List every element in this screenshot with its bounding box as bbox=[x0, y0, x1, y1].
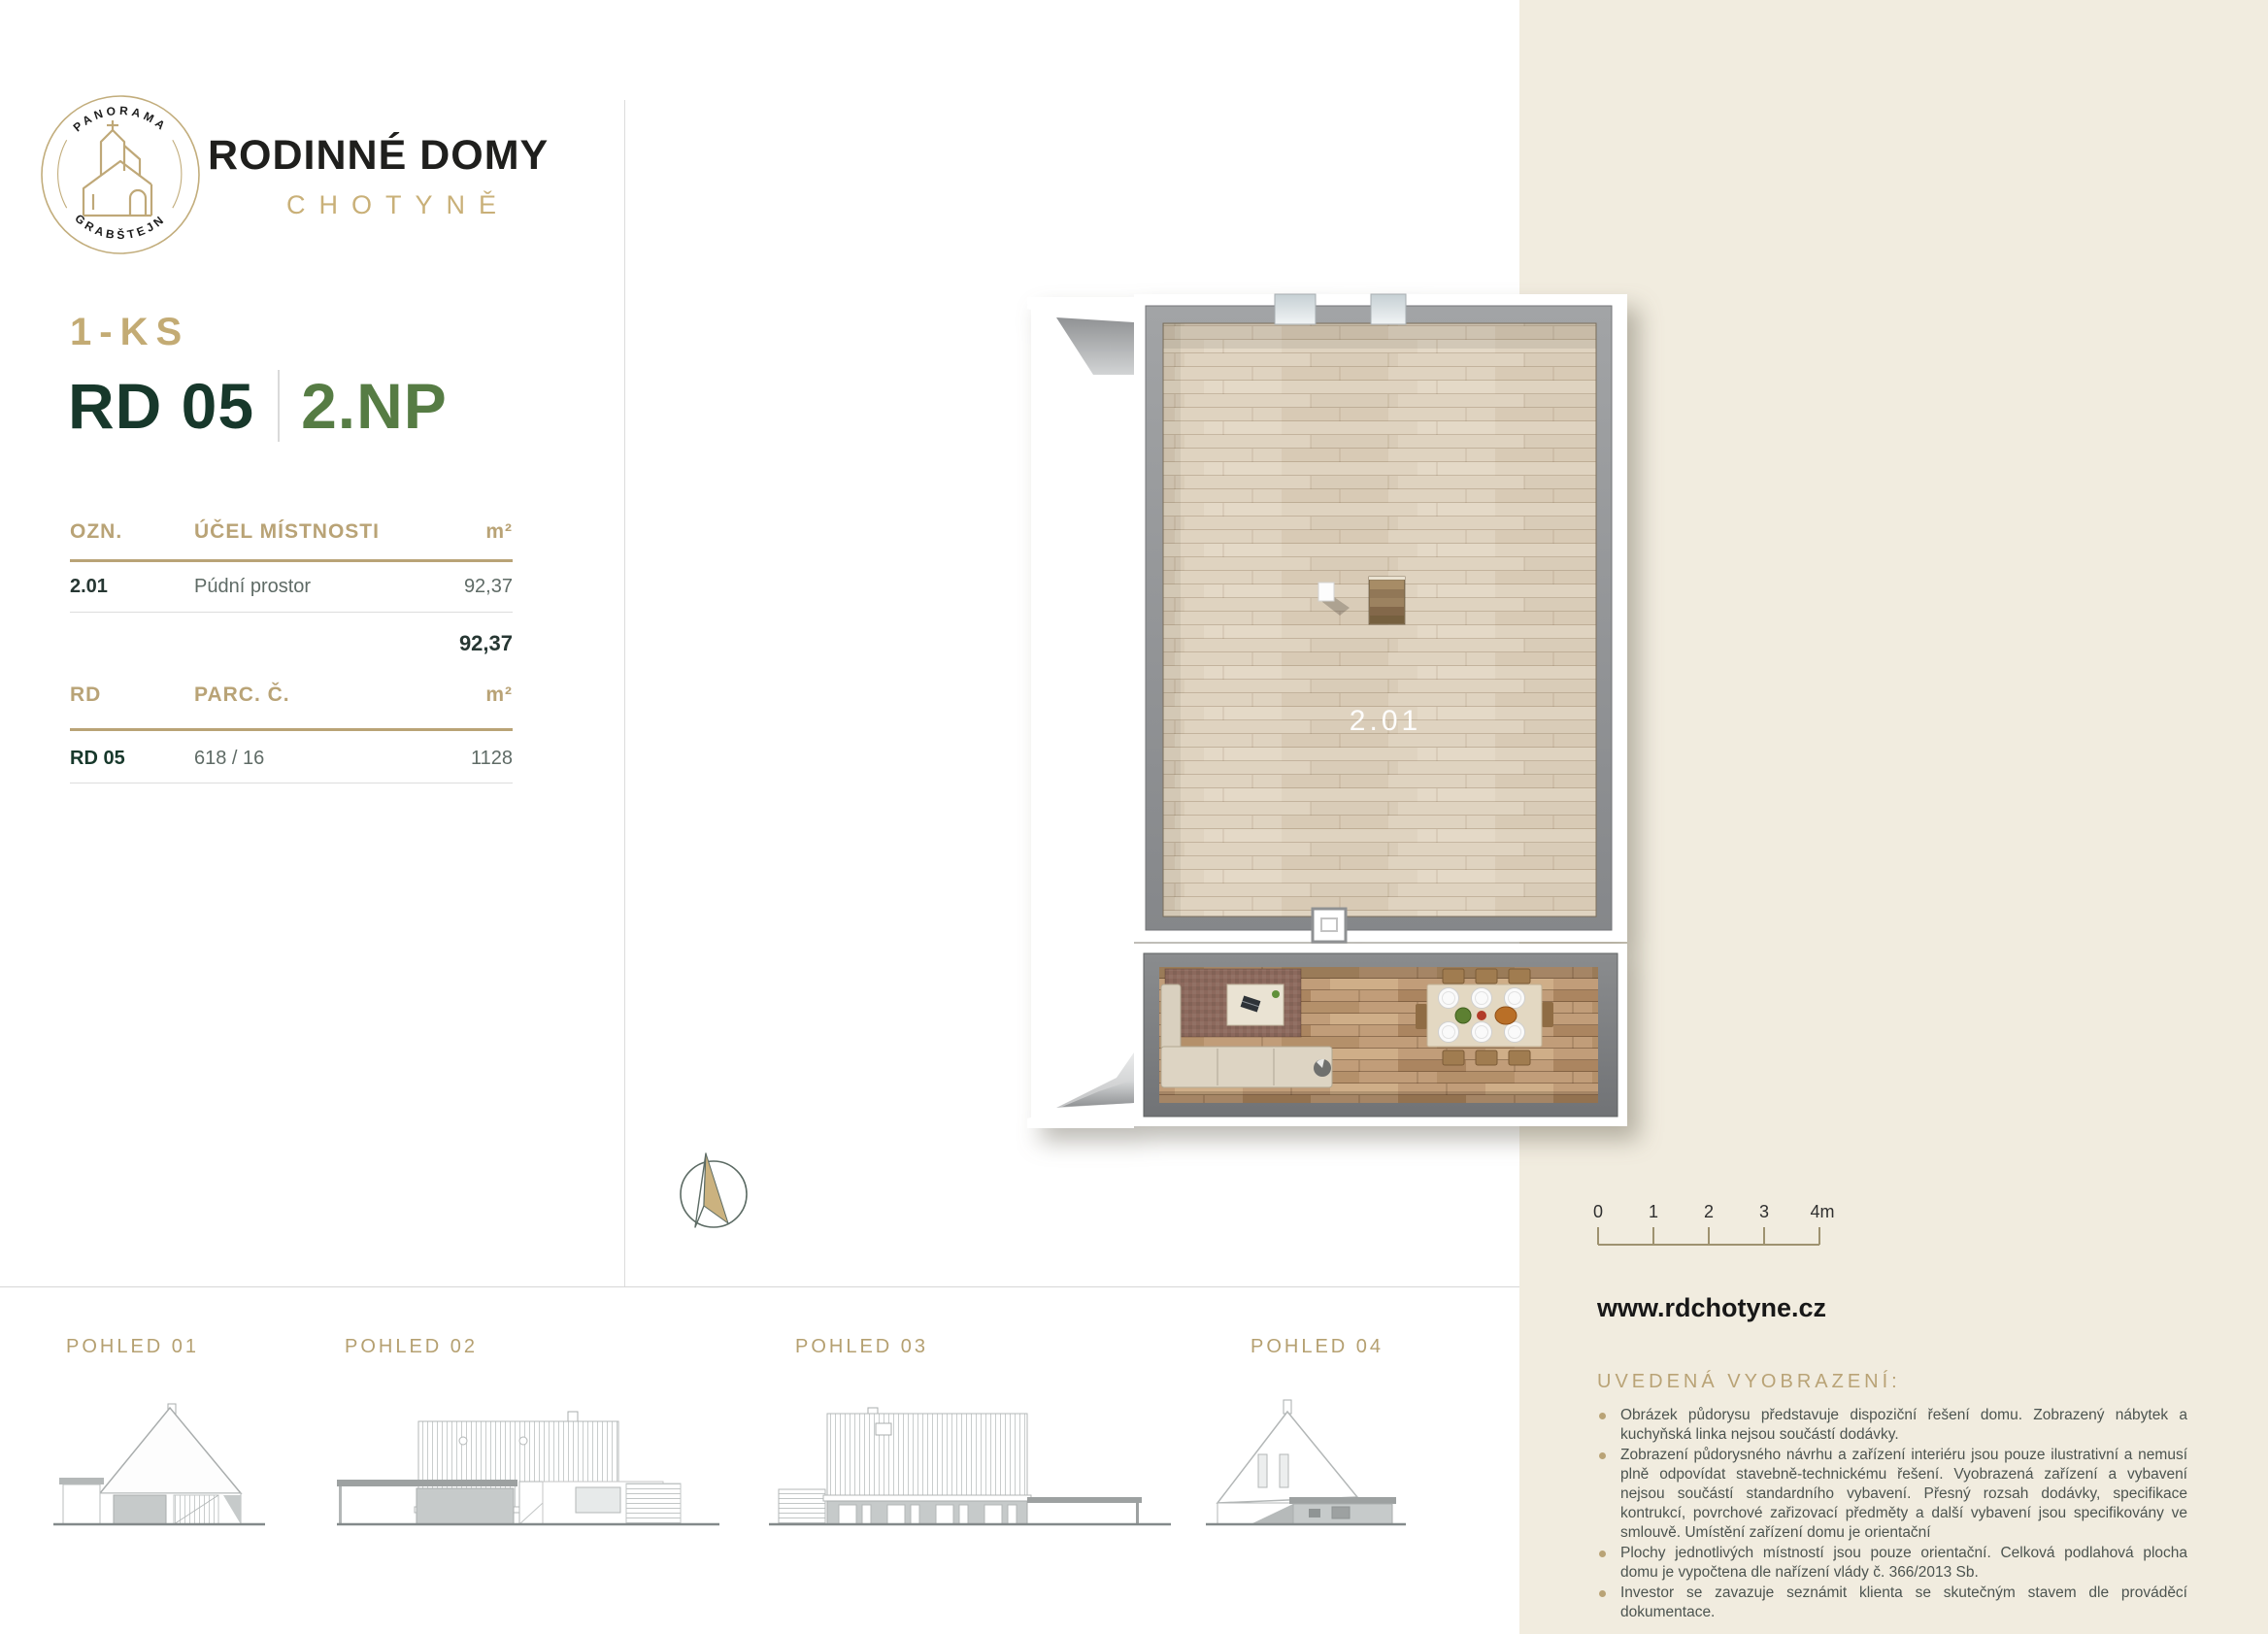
parcel-table-header: RD PARC. Č. m² bbox=[70, 684, 513, 707]
rooms-total: 92,37 bbox=[70, 631, 513, 656]
scale-tick-3: 3 bbox=[1759, 1202, 1769, 1222]
parcel-number: 618 / 16 bbox=[194, 748, 264, 770]
logo-ring-top-text: PANORAMA bbox=[71, 104, 171, 135]
disclaimer-list: Obrázek půdorysu představuje dispoziční … bbox=[1597, 1406, 2187, 1623]
view-label-pohled-03: POHLED 03 bbox=[795, 1336, 928, 1358]
unit-house-id: RD 05 bbox=[68, 369, 254, 443]
parcel-col-rd: RD bbox=[70, 684, 101, 707]
disclaimer-item: Obrázek půdorysu představuje dispoziční … bbox=[1597, 1406, 2187, 1445]
parcel-table-row: RD 05 618 / 16 1128 bbox=[70, 748, 513, 771]
rooms-table-rule bbox=[70, 559, 513, 562]
unit-type-label: 1-KS bbox=[70, 311, 189, 354]
elevation-pohled-04 bbox=[1204, 1396, 1410, 1537]
plan-left-band bbox=[1027, 297, 1134, 1128]
bullet-icon bbox=[1599, 1452, 1606, 1459]
disclaimer-text: Obrázek půdorysu představuje dispoziční … bbox=[1620, 1407, 2187, 1443]
rooms-table-row: 2.01 Púdní prostor 92,37 bbox=[70, 576, 513, 599]
unit-heading-divider bbox=[278, 370, 280, 442]
parcel-rd: RD 05 bbox=[70, 748, 125, 770]
unit-heading: RD 05 2.NP bbox=[68, 361, 448, 450]
view-label-pohled-04: POHLED 04 bbox=[1251, 1336, 1384, 1358]
elevation-pohled-03 bbox=[767, 1396, 1175, 1537]
plan-lower-strip bbox=[1134, 944, 1627, 1126]
scale-bar: 0 1 2 3 4m bbox=[1583, 1202, 1854, 1251]
bullet-icon bbox=[1599, 1590, 1606, 1597]
brand-logo-emblem: PANORAMA GRABŠTEJN bbox=[33, 87, 208, 262]
plan-room-label: 2.01 bbox=[1350, 705, 1421, 737]
disclaimer-item: Investor se zavazuje seznámit klienta se… bbox=[1597, 1584, 2187, 1622]
scale-bar-ruler bbox=[1583, 1225, 1854, 1251]
rooms-col-ozn: OZN. bbox=[70, 520, 122, 544]
unit-floor: 2.NP bbox=[301, 369, 448, 443]
plan-window-opening bbox=[1371, 294, 1406, 324]
brochure-page: PANORAMA GRABŠTEJN RODINNÉ DOMY CHOTYNĚ … bbox=[0, 0, 2268, 1634]
disclaimer-item: Plochy jednotlivých místností jsou pouze… bbox=[1597, 1544, 2187, 1583]
brand-title: RODINNÉ DOMY bbox=[208, 132, 588, 180]
room-name: Púdní prostor bbox=[194, 576, 311, 598]
plan-window-opening bbox=[1275, 294, 1316, 324]
brand-subtitle: CHOTYNĚ bbox=[208, 190, 588, 220]
room-ozn: 2.01 bbox=[70, 576, 108, 598]
parcel-row-rule bbox=[70, 783, 513, 784]
parcel-col-m2: m² bbox=[485, 684, 513, 707]
disclaimer-text: Zobrazení půdorysného návrhu a zařízení … bbox=[1620, 1447, 2187, 1541]
elevation-pohled-02 bbox=[335, 1396, 723, 1537]
view-label-pohled-02: POHLED 02 bbox=[345, 1336, 478, 1358]
svg-text:PANORAMA: PANORAMA bbox=[71, 104, 171, 135]
plan-main-room: 2.01 bbox=[1134, 294, 1627, 942]
floor-lamp bbox=[1314, 1059, 1331, 1077]
website-url: www.rdchotyne.cz bbox=[1597, 1293, 1826, 1323]
horizontal-divider bbox=[0, 1286, 1519, 1287]
bullet-icon bbox=[1599, 1551, 1606, 1557]
plant-pot bbox=[1272, 990, 1280, 998]
rooms-row-rule bbox=[70, 612, 513, 613]
north-arrow-icon bbox=[673, 1148, 756, 1237]
parcel-table-rule bbox=[70, 728, 513, 731]
vertical-divider bbox=[624, 100, 625, 1286]
disclaimer-item: Zobrazení půdorysného návrhu a zařízení … bbox=[1597, 1446, 2187, 1543]
disclaimer-text: Investor se zavazuje seznámit klienta se… bbox=[1620, 1584, 2187, 1620]
disclaimer-heading: UVEDENÁ VYOBRAZENÍ: bbox=[1597, 1371, 1901, 1393]
scale-tick-2: 2 bbox=[1704, 1202, 1714, 1222]
room-area: 92,37 bbox=[464, 576, 513, 598]
plan-door-marker bbox=[1313, 909, 1346, 942]
coffee-table bbox=[1227, 984, 1284, 1025]
rooms-col-name: ÚČEL MÍSTNOSTI bbox=[194, 520, 380, 544]
parcel-col-parc: PARC. Č. bbox=[194, 684, 290, 707]
floor-plan: 2.01 bbox=[1010, 280, 1660, 1153]
parcel-area: 1128 bbox=[471, 748, 513, 770]
bullet-icon bbox=[1599, 1413, 1606, 1419]
church-icon bbox=[83, 120, 151, 216]
elevation-pohled-01 bbox=[53, 1396, 272, 1537]
view-label-pohled-01: POHLED 01 bbox=[66, 1336, 199, 1358]
rooms-table-header: OZN. ÚČEL MÍSTNOSTI m² bbox=[70, 520, 513, 544]
scale-tick-1: 1 bbox=[1649, 1202, 1658, 1222]
scale-tick-4m: 4m bbox=[1810, 1202, 1834, 1222]
plan-stairs bbox=[1369, 577, 1405, 624]
scale-tick-0: 0 bbox=[1593, 1202, 1603, 1222]
disclaimer-text: Plochy jednotlivých místností jsou pouze… bbox=[1620, 1545, 2187, 1581]
rooms-col-m2: m² bbox=[485, 520, 513, 544]
